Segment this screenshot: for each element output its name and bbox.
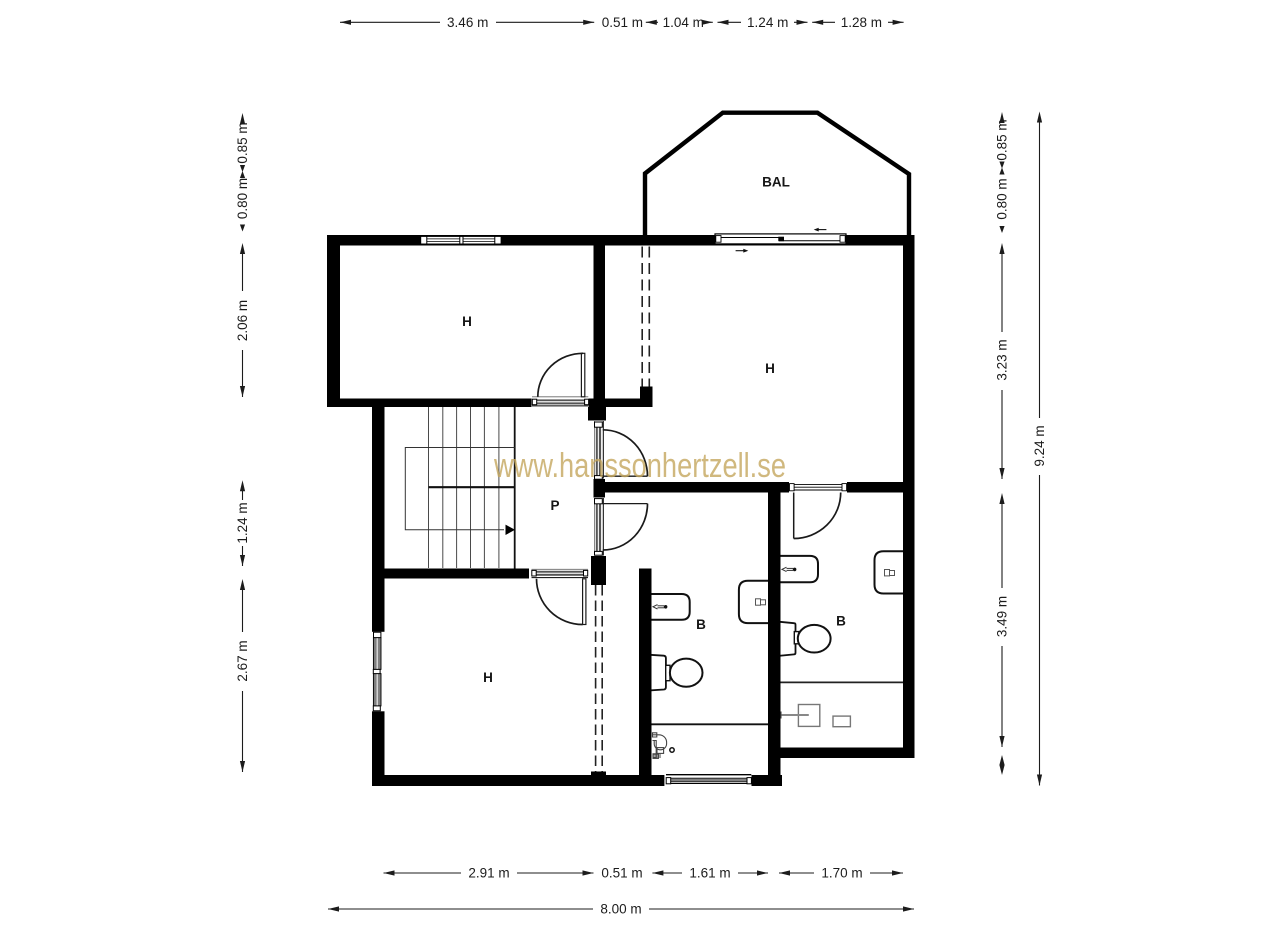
svg-text:0.80 m: 0.80 m [995,178,1010,219]
svg-text:2.67 m: 2.67 m [235,640,250,681]
svg-text:2.91 m: 2.91 m [468,866,509,881]
svg-text:B: B [696,617,706,632]
svg-text:3.46 m: 3.46 m [447,15,488,30]
svg-text:H: H [483,670,493,685]
svg-text:9.24 m: 9.24 m [1032,425,1047,466]
svg-text:www.hanssonhertzell.se: www.hanssonhertzell.se [493,447,786,485]
svg-text:P: P [550,498,559,513]
svg-text:1.70 m: 1.70 m [821,866,862,881]
svg-text:3.49 m: 3.49 m [995,596,1010,637]
svg-text:0.80 m: 0.80 m [235,178,250,219]
svg-text:0.85 m: 0.85 m [995,119,1010,160]
svg-text:1.04 m: 1.04 m [663,15,704,30]
svg-text:H: H [462,314,472,329]
svg-text:BAL: BAL [762,175,790,190]
svg-text:0.51 m: 0.51 m [601,866,642,881]
svg-text:3.23 m: 3.23 m [995,339,1010,380]
svg-text:B: B [836,614,846,629]
svg-text:0.85 m: 0.85 m [235,122,250,163]
svg-text:2.06 m: 2.06 m [235,300,250,341]
svg-text:1.24 m: 1.24 m [747,15,788,30]
svg-text:1.24 m: 1.24 m [235,502,250,543]
svg-text:H: H [765,361,775,376]
svg-text:1.28 m: 1.28 m [841,15,882,30]
svg-text:1.61 m: 1.61 m [689,866,730,881]
svg-text:8.00 m: 8.00 m [600,902,641,917]
svg-text:0.51 m: 0.51 m [602,15,643,30]
